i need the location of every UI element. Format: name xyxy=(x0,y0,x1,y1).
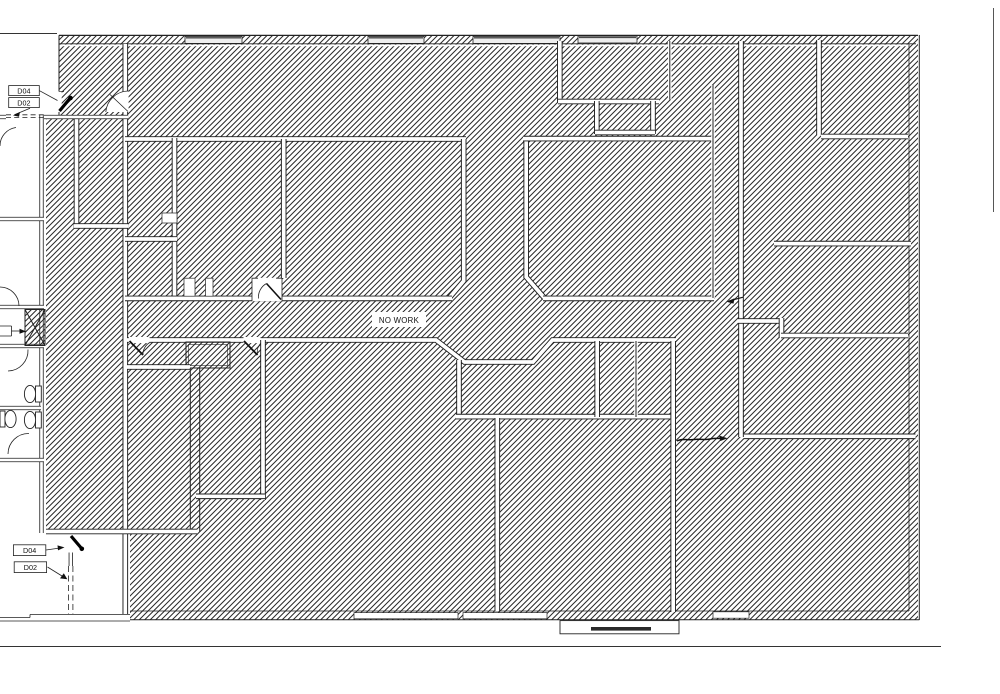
svg-text:D02: D02 xyxy=(24,563,37,572)
svg-text:D02: D02 xyxy=(17,98,30,107)
svg-text:D04: D04 xyxy=(17,86,30,95)
svg-text:D04: D04 xyxy=(23,546,36,555)
svg-text:NO WORK: NO WORK xyxy=(379,316,420,325)
